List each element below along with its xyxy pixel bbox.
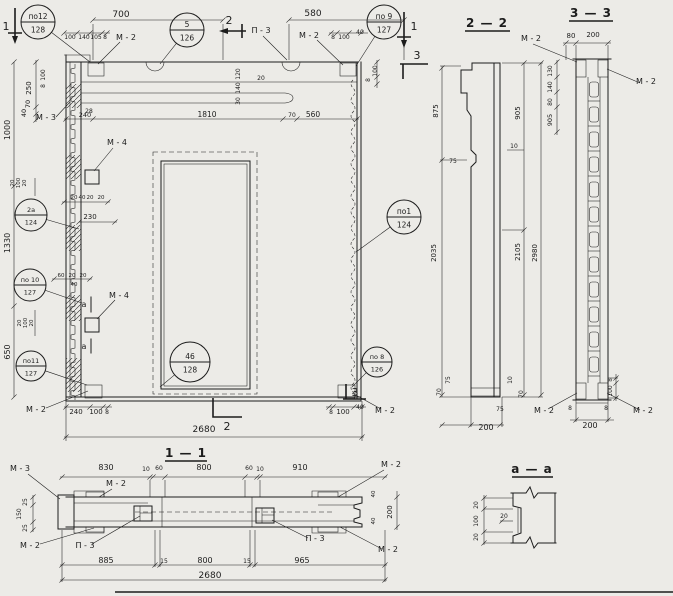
dim-label: 250 [25, 81, 33, 94]
dim-label: 8 [331, 34, 335, 41]
dim-label: 20 [98, 195, 105, 201]
dim-label: П - 3 [75, 541, 94, 550]
dim-label: 20 [80, 273, 87, 279]
dim-label: 40 [71, 282, 78, 288]
dim-label: 10 [507, 376, 514, 384]
dim-label: 1000 [3, 120, 12, 140]
dim-label: 2680 [199, 571, 222, 581]
dim-label: 40 [79, 195, 86, 201]
dim-label: 140 [235, 82, 242, 94]
dim-label: 40 [371, 490, 377, 497]
dim-label: 105 [90, 34, 102, 41]
dim-label: 20 [69, 273, 76, 279]
dim-label: 8 [604, 405, 608, 412]
dim-label: 130 [547, 65, 554, 77]
dim-label: 240 [69, 408, 82, 416]
dim-label: 2 [224, 420, 231, 433]
dim-label: 15 [243, 558, 251, 565]
dim-label: M - 2 [26, 405, 46, 414]
dim-label: 80 [567, 32, 576, 40]
dim-label: 140 [547, 81, 554, 93]
dim-label: 650 [3, 344, 12, 359]
dim-label: 100 [473, 515, 480, 527]
dim-label: 8 [329, 409, 333, 416]
dim-label: 100 [372, 65, 379, 77]
dim-label: 30 [235, 97, 242, 105]
dim-label: П - 3 [251, 26, 270, 35]
dim-label: 1 [411, 20, 418, 33]
dim-label: 800 [197, 556, 212, 565]
callout-sheet-number: 128 [183, 366, 198, 375]
dim-label: M - 2 [20, 541, 40, 550]
dim-label: 1330 [3, 233, 12, 253]
callout-position-number: по 8 [370, 353, 384, 361]
title-section-2-2: 2 — 2 [466, 16, 508, 30]
dim-label: M - 4 [109, 291, 129, 300]
dim-label: 15 [160, 558, 168, 565]
callout-position-number: по1 [397, 207, 411, 216]
callout-sheet-number: 124 [397, 221, 412, 230]
dim-label: 200 [386, 505, 394, 518]
dim-label: 8 [105, 409, 109, 416]
dim-label: 8 [365, 78, 372, 82]
dim-label: 20 [29, 319, 35, 326]
dim-label: 8 [103, 34, 107, 41]
dim-label: 120 [235, 68, 242, 80]
dim-label: 80 [547, 98, 554, 106]
dim-label: a [82, 300, 87, 309]
dim-label: 800 [196, 463, 211, 472]
callout-sheet-number: 128 [31, 26, 46, 35]
dim-label: 10 [510, 143, 518, 150]
callout-sheet-number: 127 [25, 370, 37, 378]
dim-label: M - 2 [633, 406, 653, 415]
title-section-3-3: 3 — 3 [570, 6, 612, 20]
dim-label: 100 [336, 408, 349, 416]
dim-label: 10 [142, 466, 150, 473]
callout-position-number: по12 [28, 12, 47, 21]
dim-label: 905 [514, 106, 522, 119]
dim-label: 140 [78, 34, 90, 41]
dim-label: 875 [432, 104, 440, 117]
dim-label: 700 [112, 10, 129, 20]
dim-label: 905 [546, 114, 554, 126]
dim-label: 910 [292, 463, 307, 472]
dim-label: a [82, 342, 87, 351]
dim-label: 70 [436, 388, 443, 396]
dim-label: M - 2 [116, 33, 136, 42]
dim-label: 200 [586, 31, 599, 39]
dim-label: 40 [356, 404, 364, 411]
dim-label: 10 [256, 466, 264, 473]
dim-label: 25 [22, 498, 29, 506]
callout-position-number: 2a [27, 206, 35, 214]
dim-label: 965 [294, 556, 309, 565]
dim-label: 20 [257, 75, 265, 82]
dim-label: 75 [449, 158, 457, 165]
dim-label: M - 2 [299, 31, 319, 40]
dim-label: M - 3 [36, 113, 56, 122]
dim-label: 240 [79, 111, 91, 119]
callout-position-number: по11 [23, 357, 40, 365]
dim-label: M - 2 [378, 545, 398, 554]
dim-label: 20 [22, 179, 28, 186]
dim-label: 100 [607, 385, 614, 397]
dim-label: 20 [87, 195, 94, 201]
dim-label: 20 [473, 501, 480, 509]
callout-position-number: по 9 [376, 12, 393, 21]
dim-label: 60 [245, 465, 253, 472]
dim-label: 830 [98, 463, 113, 472]
dim-label: 560 [306, 110, 321, 119]
dim-label: 8 [568, 405, 572, 412]
dim-label: 2 [226, 14, 233, 27]
paper-background [0, 0, 673, 596]
dim-label: 70 [288, 112, 296, 119]
dim-label: 1810 [197, 110, 216, 119]
dim-label: M - 4 [107, 138, 127, 147]
dim-label: 60 [58, 273, 65, 279]
dim-label: 60 [155, 465, 163, 472]
title-detail-a-a: a — a [511, 462, 553, 476]
dim-label: M - 2 [381, 460, 401, 469]
dim-label: M - 2 [534, 406, 554, 415]
dim-label: 1 [3, 20, 10, 33]
callout-position-number: по 10 [21, 276, 40, 284]
dim-label: 20 [500, 513, 508, 520]
dim-label: 2035 [430, 244, 438, 262]
dim-label: 100 [64, 34, 76, 41]
dim-label: 200 [478, 423, 493, 432]
dim-label: 3 [414, 49, 421, 62]
dim-label: 2105 [514, 243, 522, 261]
dim-label: 40 [356, 29, 364, 36]
dim-label: 100 [338, 34, 350, 41]
dim-label: 230 [83, 213, 96, 221]
dim-label: M - 2 [106, 479, 126, 488]
dim-label: 25 [22, 524, 29, 532]
dim-label: 75 [496, 406, 504, 413]
dim-label: 100 [40, 69, 47, 81]
dim-label: 70 [24, 100, 32, 108]
dim-label: 40 [371, 517, 377, 524]
dim-label: M - 2 [375, 406, 395, 415]
callout-sheet-number: 127 [377, 26, 392, 35]
dim-label: 3 [352, 386, 359, 399]
dim-label: 580 [304, 9, 321, 19]
dim-label: 8 [40, 84, 47, 88]
dim-label: 8 [608, 378, 614, 382]
dim-label: 2980 [531, 244, 539, 262]
dim-label: M - 2 [636, 77, 656, 86]
dim-label: 40 [20, 109, 28, 117]
dim-label: 20 [473, 533, 480, 541]
dim-label: 2680 [193, 425, 216, 435]
dim-label: 75 [445, 376, 452, 384]
dim-label: 100 [89, 408, 102, 416]
dim-label: П - 3 [305, 534, 324, 543]
dim-label: M - 3 [10, 464, 30, 473]
callout-sheet-number: 127 [24, 289, 36, 297]
dim-label: 20 [71, 195, 78, 201]
callout-sheet-number: 126 [180, 34, 195, 43]
callout-position-number: 5 [185, 20, 190, 29]
dim-label: M - 2 [521, 34, 541, 43]
panel-working-drawing: 1 — 1 2 — 2 3 — 3 a — a по121285126по 91… [0, 0, 673, 596]
dim-label: 885 [98, 556, 113, 565]
dim-label: 150 [16, 508, 23, 520]
callout-sheet-number: 126 [371, 366, 383, 374]
title-section-1-1: 1 — 1 [165, 446, 207, 460]
dim-label: 70 [518, 390, 525, 398]
dim-label: 200 [582, 421, 597, 430]
callout-sheet-number: 124 [25, 219, 37, 227]
drawing-sheet: 1 — 1 2 — 2 3 — 3 a — a по121285126по 91… [0, 0, 673, 596]
callout-position-number: 46 [185, 352, 195, 361]
